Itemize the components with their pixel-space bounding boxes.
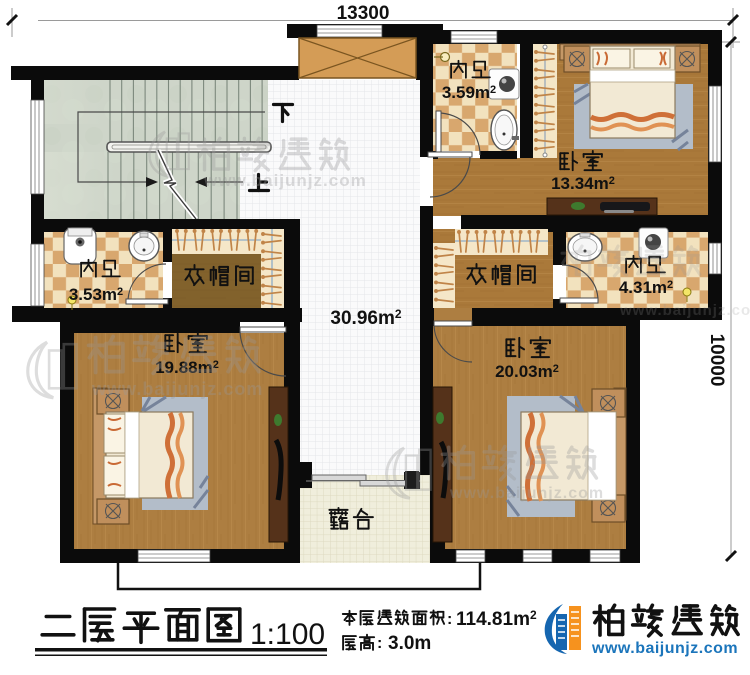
svg-text:4.31m2: 4.31m2 xyxy=(619,278,673,297)
svg-text:114.81m2: 114.81m2 xyxy=(456,608,537,630)
svg-text:13300: 13300 xyxy=(337,3,390,24)
svg-text:13.34m2: 13.34m2 xyxy=(551,174,615,193)
svg-text:www.baijunjz.com: www.baijunjz.com xyxy=(619,302,750,319)
svg-text:www.baijunjz.com: www.baijunjz.com xyxy=(591,640,738,657)
svg-text:3.0m: 3.0m xyxy=(388,633,431,654)
svg-text:www.baijunjz.com: www.baijunjz.com xyxy=(91,379,263,399)
svg-text:www.baijunjz.com: www.baijunjz.com xyxy=(449,485,604,502)
svg-text::: : xyxy=(377,635,382,652)
svg-text:30.96m2: 30.96m2 xyxy=(330,307,401,329)
svg-text:3.59m2: 3.59m2 xyxy=(442,83,496,102)
svg-text:1:100: 1:100 xyxy=(250,618,325,651)
svg-text::: : xyxy=(447,611,452,628)
svg-text:10000: 10000 xyxy=(706,334,727,387)
svg-text:3.53m2: 3.53m2 xyxy=(69,285,123,304)
svg-text:www.baijunjz.com: www.baijunjz.com xyxy=(203,171,367,190)
svg-text:20.03m2: 20.03m2 xyxy=(495,362,559,381)
